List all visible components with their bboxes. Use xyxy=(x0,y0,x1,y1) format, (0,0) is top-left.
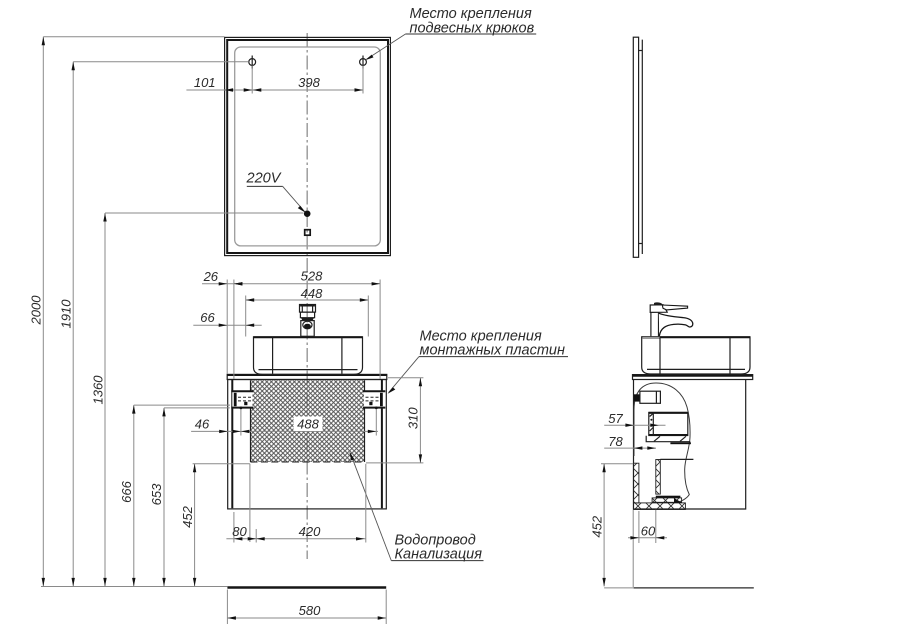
svg-text:452: 452 xyxy=(180,505,195,527)
svg-text:580: 580 xyxy=(299,603,321,618)
svg-text:488: 488 xyxy=(297,417,319,432)
svg-text:66: 66 xyxy=(200,310,215,325)
svg-text:448: 448 xyxy=(301,286,323,301)
svg-text:666: 666 xyxy=(119,480,134,502)
svg-text:310: 310 xyxy=(406,407,421,429)
svg-text:101: 101 xyxy=(194,75,216,90)
svg-text:57: 57 xyxy=(608,411,623,426)
svg-text:1910: 1910 xyxy=(59,299,74,329)
svg-text:60: 60 xyxy=(641,524,656,539)
svg-text:452: 452 xyxy=(589,515,604,537)
svg-text:2000: 2000 xyxy=(29,295,44,326)
svg-text:26: 26 xyxy=(203,269,219,284)
svg-text:420: 420 xyxy=(299,524,321,539)
svg-text:528: 528 xyxy=(301,269,323,284)
svg-text:78: 78 xyxy=(608,434,623,449)
svg-text:1360: 1360 xyxy=(90,375,105,405)
svg-text:398: 398 xyxy=(298,75,320,90)
svg-text:80: 80 xyxy=(232,524,247,539)
svg-text:653: 653 xyxy=(149,483,164,505)
svg-text:220V: 220V xyxy=(246,171,282,187)
svg-text:46: 46 xyxy=(195,417,210,432)
